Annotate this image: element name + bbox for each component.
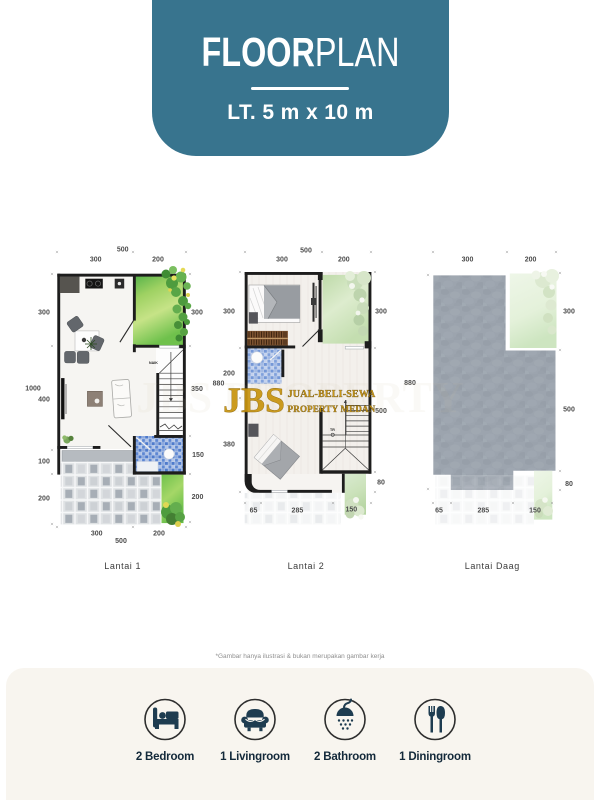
svg-text:80: 80 (565, 481, 573, 488)
svg-text:380: 380 (223, 442, 235, 449)
svg-text:PROPERTY MEDAN: PROPERTY MEDAN (288, 404, 376, 414)
svg-text:150: 150 (192, 452, 204, 459)
svg-text:150: 150 (529, 508, 541, 515)
svg-text:65: 65 (435, 508, 443, 515)
svg-text:Lantai 2: Lantai 2 (288, 561, 325, 571)
svg-text:500: 500 (563, 407, 575, 414)
svg-text:300: 300 (91, 531, 103, 538)
svg-text:TR: TR (330, 428, 335, 432)
svg-text:300: 300 (276, 257, 288, 264)
svg-text:200: 200 (525, 257, 537, 264)
svg-text:2 Bedroom: 2 Bedroom (136, 751, 194, 763)
svg-text:300: 300 (375, 309, 387, 316)
svg-text:500: 500 (117, 247, 129, 254)
svg-text:200: 200 (153, 531, 165, 538)
svg-text:300: 300 (462, 257, 474, 264)
svg-text:JBS: JBS (223, 380, 285, 420)
svg-text:300: 300 (223, 309, 235, 316)
svg-text:200: 200 (192, 494, 204, 501)
svg-text:1000: 1000 (25, 386, 41, 393)
svg-text:NAIK: NAIK (149, 361, 158, 365)
svg-text:285: 285 (477, 508, 489, 515)
svg-text:Lantai 1: Lantai 1 (104, 561, 141, 571)
svg-text:200: 200 (338, 257, 350, 264)
svg-text:285: 285 (292, 508, 304, 515)
svg-text:200: 200 (38, 496, 50, 503)
svg-text:1 Livingroom: 1 Livingroom (220, 751, 290, 763)
svg-text:80: 80 (377, 480, 385, 487)
svg-text:500: 500 (300, 248, 312, 255)
svg-text:300: 300 (90, 257, 102, 264)
svg-text:300: 300 (38, 310, 50, 317)
svg-text:JUAL-BELI-SEWA: JUAL-BELI-SEWA (288, 389, 376, 400)
svg-text:1 Diningroom: 1 Diningroom (399, 751, 471, 763)
svg-text:2 Bathroom: 2 Bathroom (314, 751, 376, 763)
svg-text:400: 400 (38, 397, 50, 404)
svg-text:200: 200 (152, 257, 164, 264)
svg-text:65: 65 (250, 508, 258, 515)
svg-text:300: 300 (563, 309, 575, 316)
svg-text:300: 300 (191, 310, 203, 317)
svg-text:150: 150 (345, 507, 357, 514)
svg-text:Lantai Daag: Lantai Daag (465, 561, 520, 571)
svg-text:500: 500 (115, 538, 127, 545)
svg-text:100: 100 (38, 459, 50, 466)
